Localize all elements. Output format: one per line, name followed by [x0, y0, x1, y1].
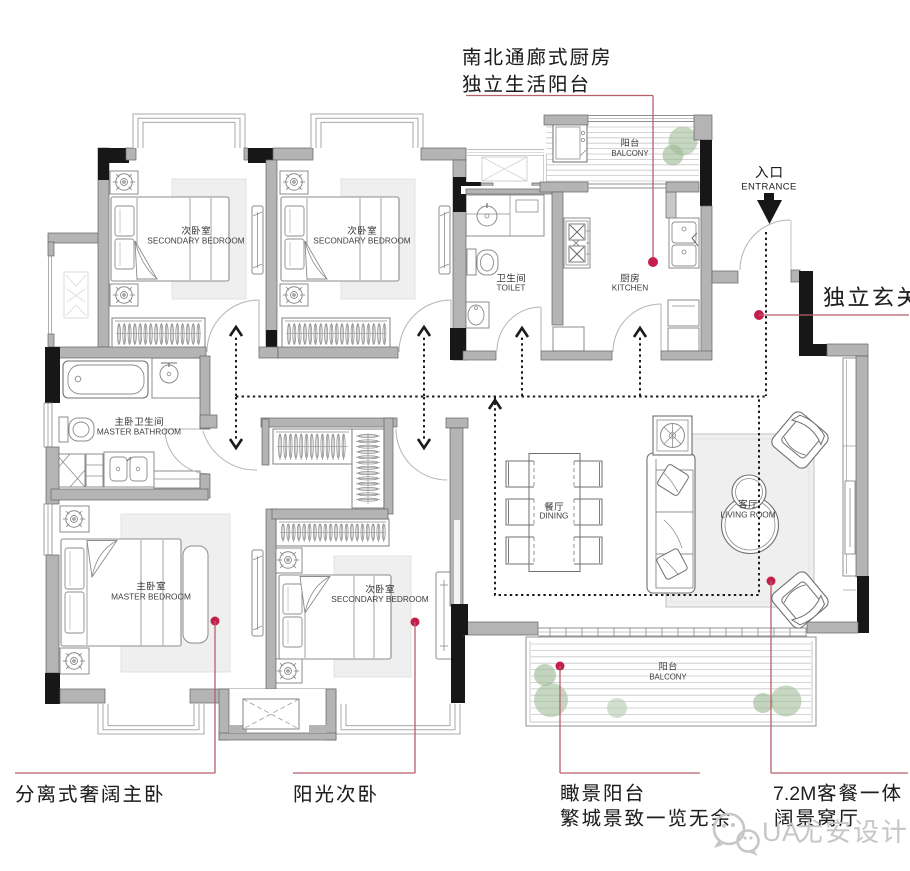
svg-text:KITCHEN: KITCHEN	[612, 283, 648, 293]
svg-text:SECONDARY BEDROOM: SECONDARY BEDROOM	[147, 236, 245, 246]
svg-text:DINING: DINING	[539, 511, 568, 521]
svg-text:TOILET: TOILET	[497, 283, 526, 293]
svg-text:BALCONY: BALCONY	[649, 673, 687, 682]
svg-text:UA: UA	[762, 817, 801, 847]
svg-text:LIVING ROOM: LIVING ROOM	[720, 510, 775, 520]
svg-text:MASTER BATHROOM: MASTER BATHROOM	[97, 427, 181, 437]
svg-text:MASTER BEDROOM: MASTER BEDROOM	[111, 592, 191, 602]
svg-text:SECONDARY BEDROOM: SECONDARY BEDROOM	[331, 594, 429, 604]
svg-text:ENTRANCE: ENTRANCE	[741, 182, 796, 193]
svg-text:7.2M: 7.2M	[773, 783, 816, 805]
svg-text:SECONDARY BEDROOM: SECONDARY BEDROOM	[313, 236, 411, 246]
svg-text:BALCONY: BALCONY	[611, 149, 649, 158]
